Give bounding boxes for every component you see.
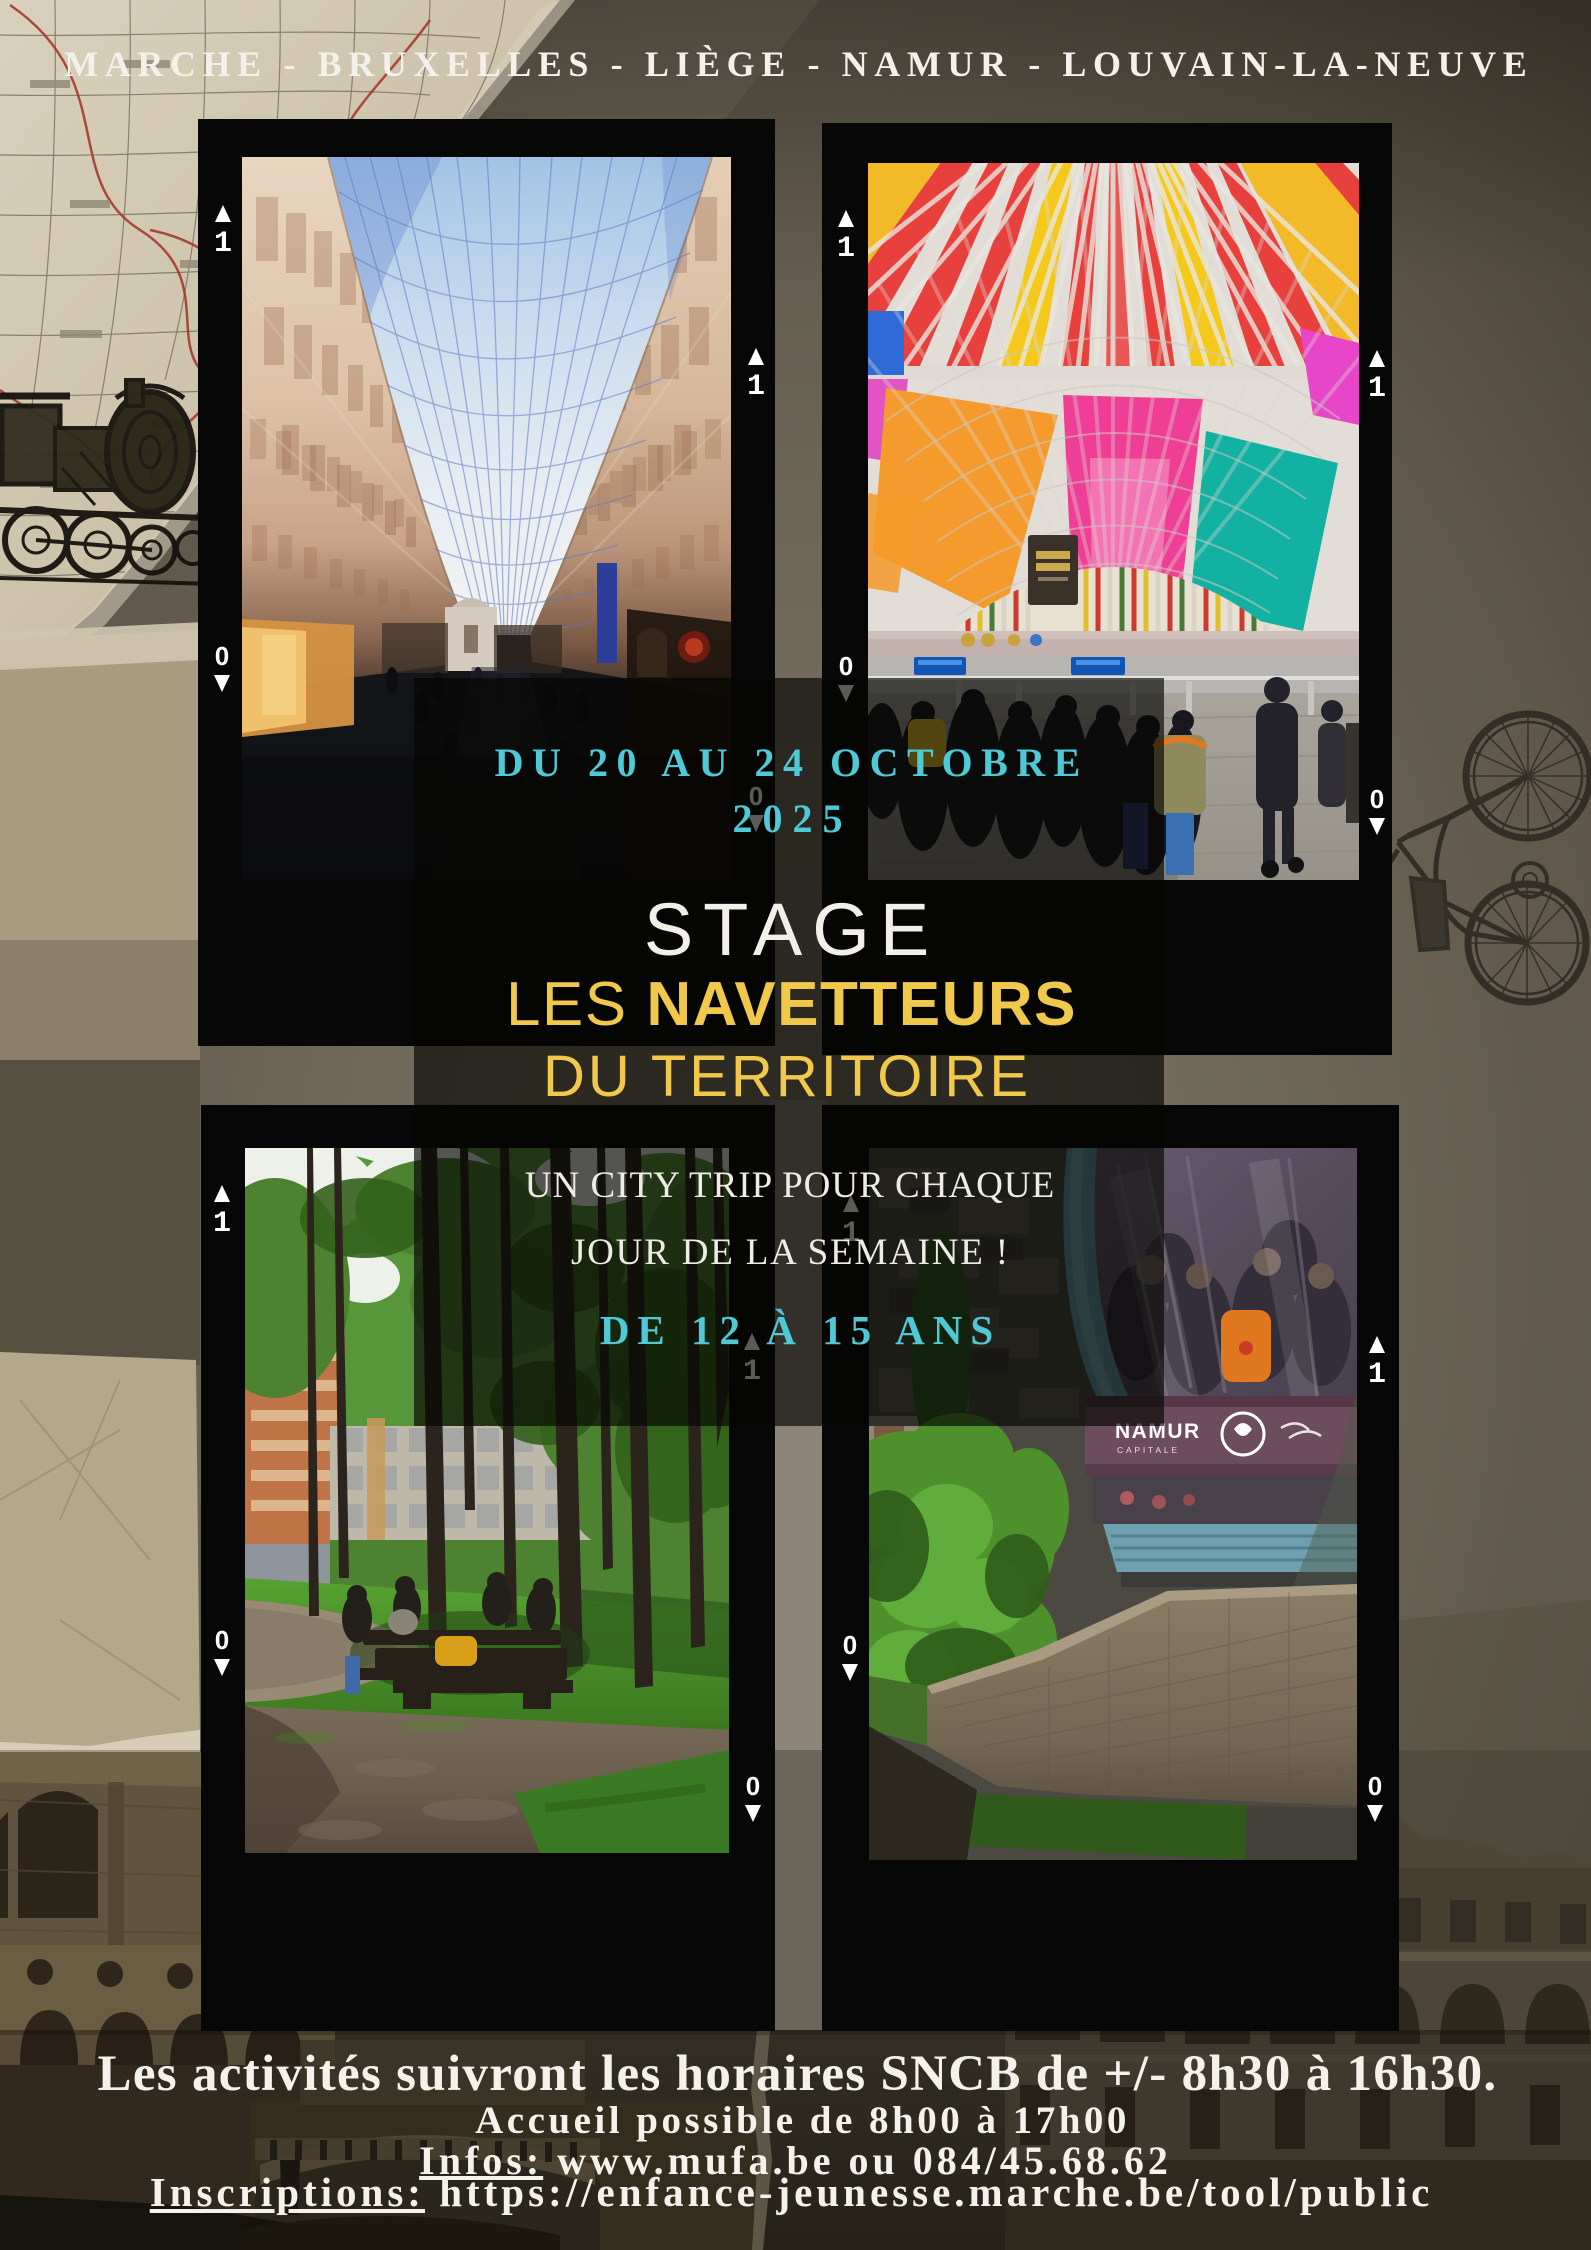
svg-text:CAPITALE: CAPITALE — [1117, 1445, 1180, 1455]
